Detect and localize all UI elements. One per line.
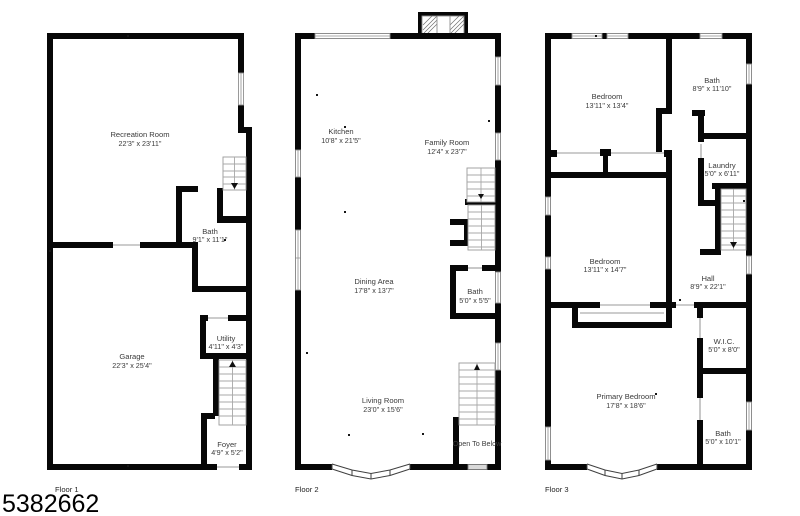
f2-family-room-label: Family Room (425, 138, 470, 147)
f2-kitchen-dims: 10'8" x 21'5" (321, 136, 361, 145)
floor-1-plan: Recreation Room 22'3" x 23'11" Bath 9'1"… (47, 33, 252, 494)
f2-dining-area-dims: 17'8" x 13'7" (354, 286, 394, 295)
f2-stairs-upper (467, 168, 495, 250)
floor-2-caption: Floor 2 (295, 485, 319, 494)
f3-stairs (721, 189, 746, 250)
f3-primary-bedroom-label: Primary Bedroom (596, 392, 655, 401)
f3-laundry-dims: 5'0" x 6'11" (705, 169, 740, 178)
f3-bow-window (587, 464, 657, 479)
f3-bedroom1-dims: 13'11" x 13'4" (586, 101, 629, 110)
f3-primary-bedroom-dims: 17'8" x 18'6" (606, 401, 646, 410)
listing-number: 5382662 (2, 490, 99, 516)
f3-bedroom2-dims: 13'11" x 14'7" (584, 265, 627, 274)
f1-tick-marks (49, 35, 226, 467)
f3-bedroom1-label: Bedroom (592, 92, 623, 101)
f1-stairs-lower (219, 360, 246, 425)
floor-3-plan: Bedroom 13'11" x 13'4" Bath 8'9" x 11'10… (545, 33, 752, 494)
f2-family-room-dims: 12'4" x 23'7" (427, 147, 467, 156)
f2-living-room-dims: 23'0" x 15'6" (363, 405, 403, 414)
f2-dining-area-label: Dining Area (354, 277, 394, 286)
f1-utility-dims: 4'11" x 4'3" (209, 342, 244, 351)
f1-garage-dims: 22'3" x 25'4" (112, 361, 152, 370)
f1-foyer-dims: 4'9" x 5'2" (211, 448, 243, 457)
f2-kitchen-label: Kitchen (328, 127, 353, 136)
f1-interior-walls (53, 186, 252, 470)
f1-recreation-room-dims: 22'3" x 23'11" (119, 139, 162, 148)
f3-hall-dims: 8'9" x 22'1" (690, 282, 726, 291)
f1-stairs-upper (223, 157, 246, 190)
f1-garage-label: Garage (119, 352, 144, 361)
floor-3-caption: Floor 3 (545, 485, 569, 494)
f2-bow-window (332, 464, 410, 479)
f3-wic-dims: 5'0" x 8'0" (708, 345, 740, 354)
f2-living-room-label: Living Room (362, 396, 404, 405)
f2-stairs-lower (459, 363, 495, 425)
f1-bath-dims: 9'1" x 11'1" (193, 235, 228, 244)
floorplan-sheet: Recreation Room 22'3" x 23'11" Bath 9'1"… (0, 0, 800, 516)
f2-bath-label: Bath (467, 287, 483, 296)
floorplan-drawing: Recreation Room 22'3" x 23'11" Bath 9'1"… (0, 0, 800, 516)
f2-bath-dims: 5'0" x 5'5" (459, 296, 491, 305)
f1-recreation-room-label: Recreation Room (110, 130, 169, 139)
f3-bath2-dims: 5'0" x 10'1" (705, 437, 741, 446)
f2-open-to-below-label: Open To Below (453, 439, 502, 448)
f3-bath1-dims: 8'9" x 11'10" (693, 84, 732, 93)
floor-2-plan: Kitchen 10'8" x 21'5" Family Room 12'4" … (295, 12, 502, 494)
f1-window-right (239, 73, 244, 105)
